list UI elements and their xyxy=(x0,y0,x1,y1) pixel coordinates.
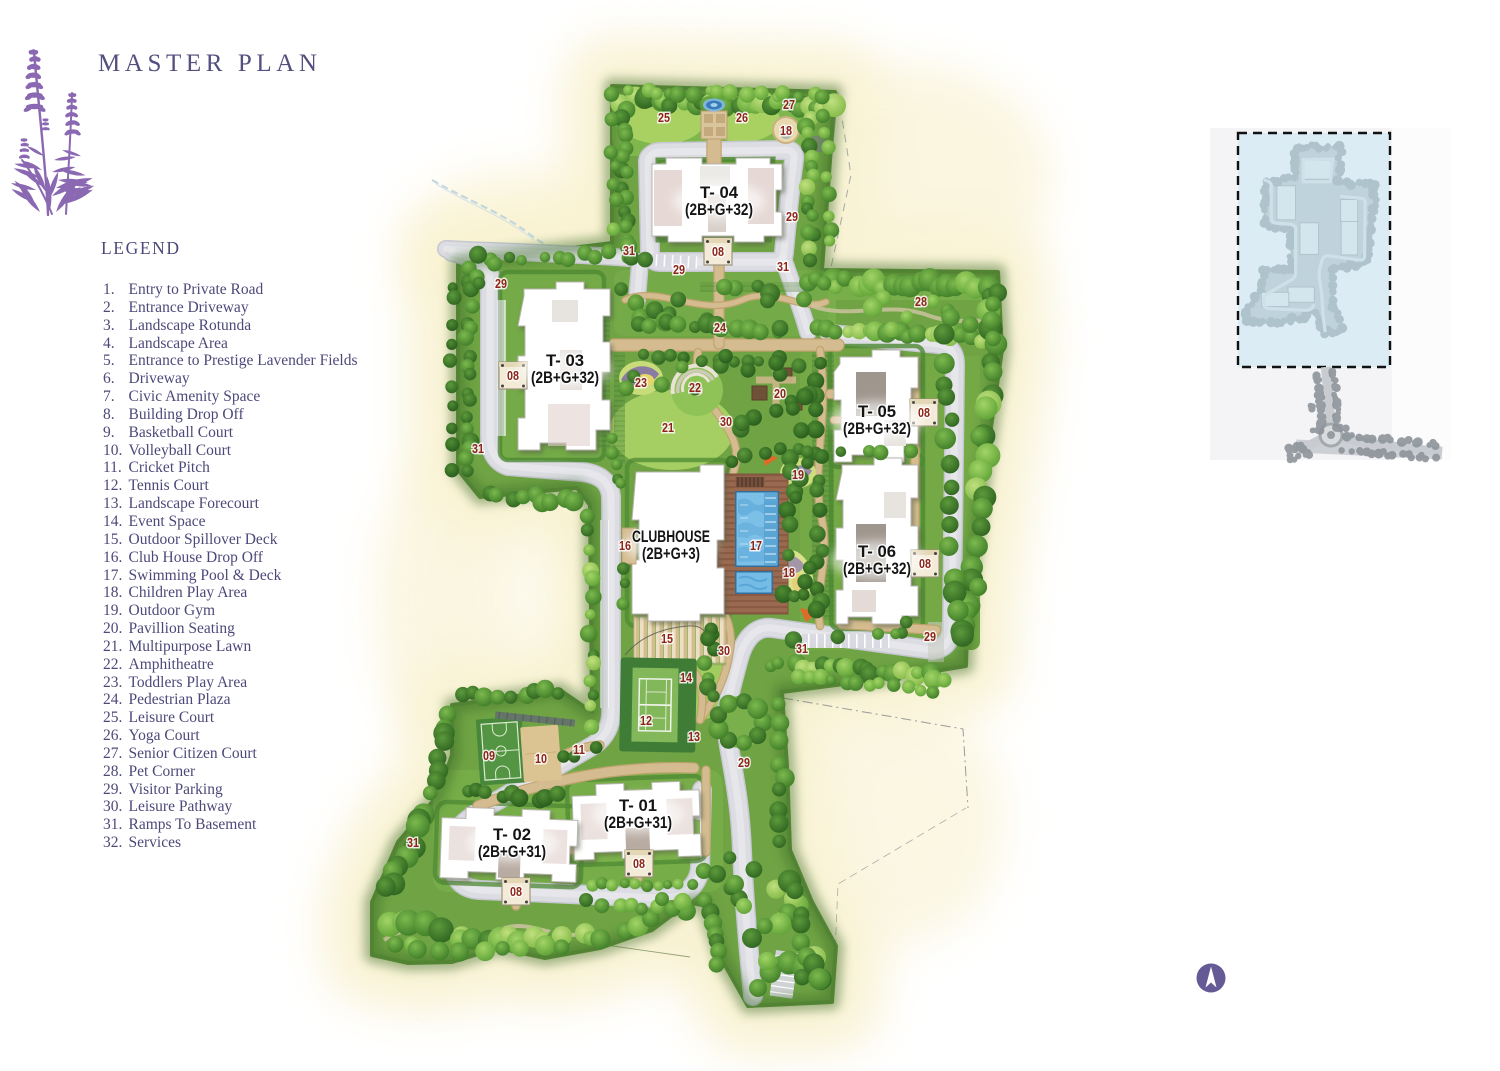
svg-text:08: 08 xyxy=(510,885,522,899)
svg-text:T- 01: T- 01 xyxy=(619,797,657,815)
svg-text:18: 18 xyxy=(783,566,795,580)
svg-text:16: 16 xyxy=(619,539,631,553)
svg-text:31: 31 xyxy=(407,836,419,850)
svg-text:08: 08 xyxy=(712,245,724,259)
svg-text:31: 31 xyxy=(472,442,484,456)
svg-text:29: 29 xyxy=(673,263,685,277)
svg-text:T- 05: T- 05 xyxy=(858,403,896,421)
svg-text:08: 08 xyxy=(918,406,930,420)
svg-text:(2B+G+3): (2B+G+3) xyxy=(642,545,700,563)
svg-text:08: 08 xyxy=(507,369,519,383)
svg-text:22: 22 xyxy=(689,381,701,395)
svg-text:26: 26 xyxy=(736,111,748,125)
svg-text:08: 08 xyxy=(919,557,931,571)
svg-text:30: 30 xyxy=(718,644,730,658)
svg-text:T- 06: T- 06 xyxy=(858,543,896,561)
svg-text:12: 12 xyxy=(640,714,652,728)
svg-text:13: 13 xyxy=(688,730,700,744)
svg-text:CLUBHOUSE: CLUBHOUSE xyxy=(632,528,710,546)
svg-text:14: 14 xyxy=(680,671,692,685)
svg-text:31: 31 xyxy=(796,642,808,656)
svg-text:29: 29 xyxy=(924,630,936,644)
svg-text:28: 28 xyxy=(915,295,927,309)
svg-text:29: 29 xyxy=(738,756,750,770)
svg-text:T- 04: T- 04 xyxy=(700,184,739,202)
svg-text:29: 29 xyxy=(786,210,798,224)
svg-text:(2B+G+31): (2B+G+31) xyxy=(604,814,672,832)
svg-text:21: 21 xyxy=(662,421,674,435)
svg-text:09: 09 xyxy=(483,749,495,763)
svg-text:T- 03: T- 03 xyxy=(546,352,584,370)
svg-text:(2B+G+32): (2B+G+32) xyxy=(843,560,911,578)
svg-text:17: 17 xyxy=(750,539,762,553)
svg-text:15: 15 xyxy=(661,632,673,646)
svg-text:25: 25 xyxy=(658,111,670,125)
svg-text:18: 18 xyxy=(780,124,792,138)
svg-text:24: 24 xyxy=(714,321,726,335)
svg-text:(2B+G+32): (2B+G+32) xyxy=(531,369,599,387)
svg-text:27: 27 xyxy=(783,98,795,112)
svg-text:30: 30 xyxy=(720,415,732,429)
svg-text:29: 29 xyxy=(495,277,507,291)
svg-text:11: 11 xyxy=(573,743,585,757)
svg-text:08: 08 xyxy=(633,857,645,871)
svg-text:T- 02: T- 02 xyxy=(493,826,531,844)
svg-text:(2B+G+32): (2B+G+32) xyxy=(685,201,753,219)
svg-text:(2B+G+31): (2B+G+31) xyxy=(478,843,546,861)
svg-text:10: 10 xyxy=(535,752,547,766)
svg-text:31: 31 xyxy=(777,260,789,274)
svg-text:19: 19 xyxy=(792,468,804,482)
svg-text:(2B+G+32): (2B+G+32) xyxy=(843,420,911,438)
svg-text:31: 31 xyxy=(623,244,635,258)
svg-text:23: 23 xyxy=(635,376,647,390)
svg-text:20: 20 xyxy=(774,387,786,401)
